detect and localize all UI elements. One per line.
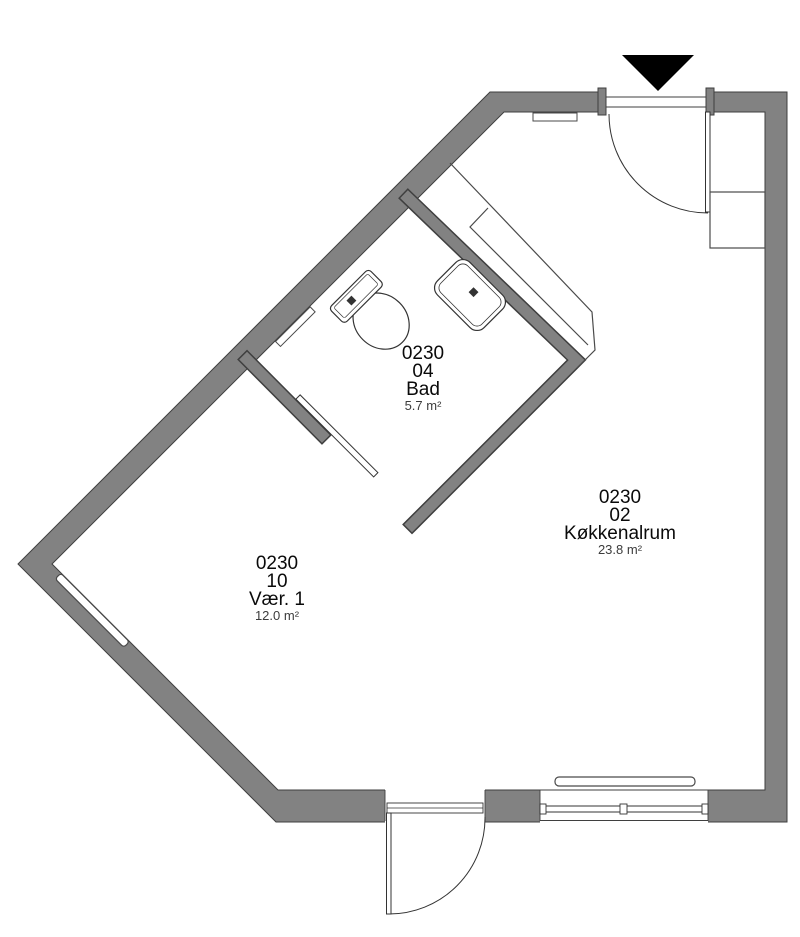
balcony-door-swing-arc (389, 817, 485, 914)
bathroom-sliding-door (296, 395, 378, 477)
entrance-triangle-icon (622, 55, 694, 91)
entrance-door-swing-arc (609, 114, 708, 213)
floor-plan-drawing: 0230 04 Bad 5.7 m² 0230 02 Køkkenalrum 2… (0, 0, 800, 937)
window-end-cap-left (540, 804, 546, 814)
washbasin-icon (430, 255, 509, 334)
entrance-jamb-left (598, 88, 606, 115)
entrance-door (598, 88, 714, 213)
room-name: Bad (406, 379, 440, 400)
floor-plan-page: 0230 04 Bad 5.7 m² 0230 02 Køkkenalrum 2… (0, 0, 800, 937)
entrance-door-leaf (706, 112, 711, 212)
entrance-opening (603, 89, 710, 115)
shaft-cabinet (710, 192, 765, 248)
room-label-vaer1: 0230 10 Vær. 1 12.0 m² (249, 553, 305, 623)
livingroom-radiator (555, 777, 695, 786)
balcony-door (385, 790, 485, 914)
room-area: 12.0 m² (255, 608, 300, 623)
room-name: Køkkenalrum (564, 523, 676, 544)
window-mullion (620, 804, 627, 814)
entrance-jamb-right (706, 88, 714, 115)
wall-shelf (533, 113, 577, 121)
room-label-koekkenalrum: 0230 02 Køkkenalrum 23.8 m² (564, 487, 676, 557)
window-end-cap-right (702, 804, 708, 814)
room-label-bad: 0230 04 Bad 5.7 m² (402, 343, 444, 413)
room-area: 5.7 m² (405, 398, 443, 413)
balcony-door-leaf (387, 813, 392, 914)
room-area: 23.8 m² (598, 542, 643, 557)
room-name: Vær. 1 (249, 589, 305, 610)
